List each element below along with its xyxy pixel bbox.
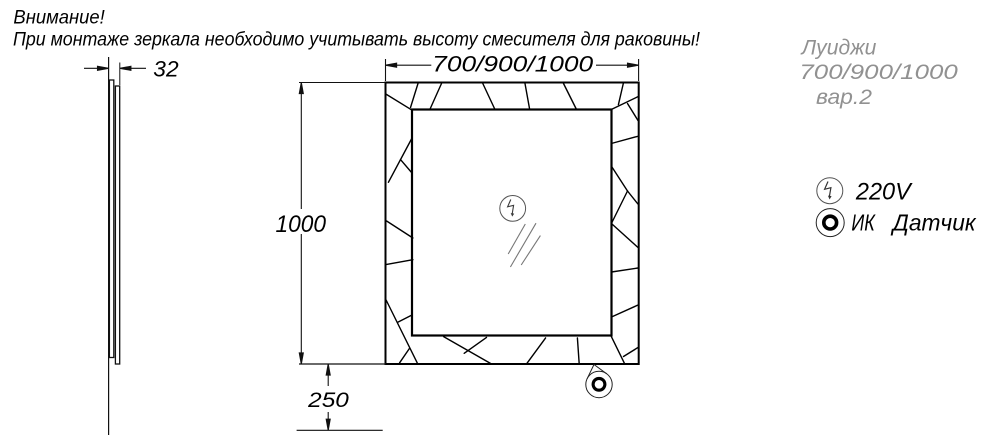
svg-text:вар.2: вар.2 [816, 84, 872, 109]
svg-text:700/900/1000: 700/900/1000 [432, 51, 594, 76]
svg-text:ИК: ИК [851, 210, 876, 236]
svg-text:32: 32 [153, 57, 178, 82]
svg-text:Внимание!: Внимание! [13, 8, 105, 29]
svg-text:250: 250 [307, 389, 349, 412]
svg-text:220V: 220V [855, 179, 913, 206]
svg-text:Датчик: Датчик [890, 210, 977, 236]
svg-text:700/900/1000: 700/900/1000 [799, 59, 957, 84]
svg-text:1000: 1000 [276, 211, 327, 238]
svg-text:Луиджи: Луиджи [800, 36, 877, 59]
svg-text:При монтаже зеркала необходимо: При монтаже зеркала необходимо учитывать… [13, 30, 701, 51]
